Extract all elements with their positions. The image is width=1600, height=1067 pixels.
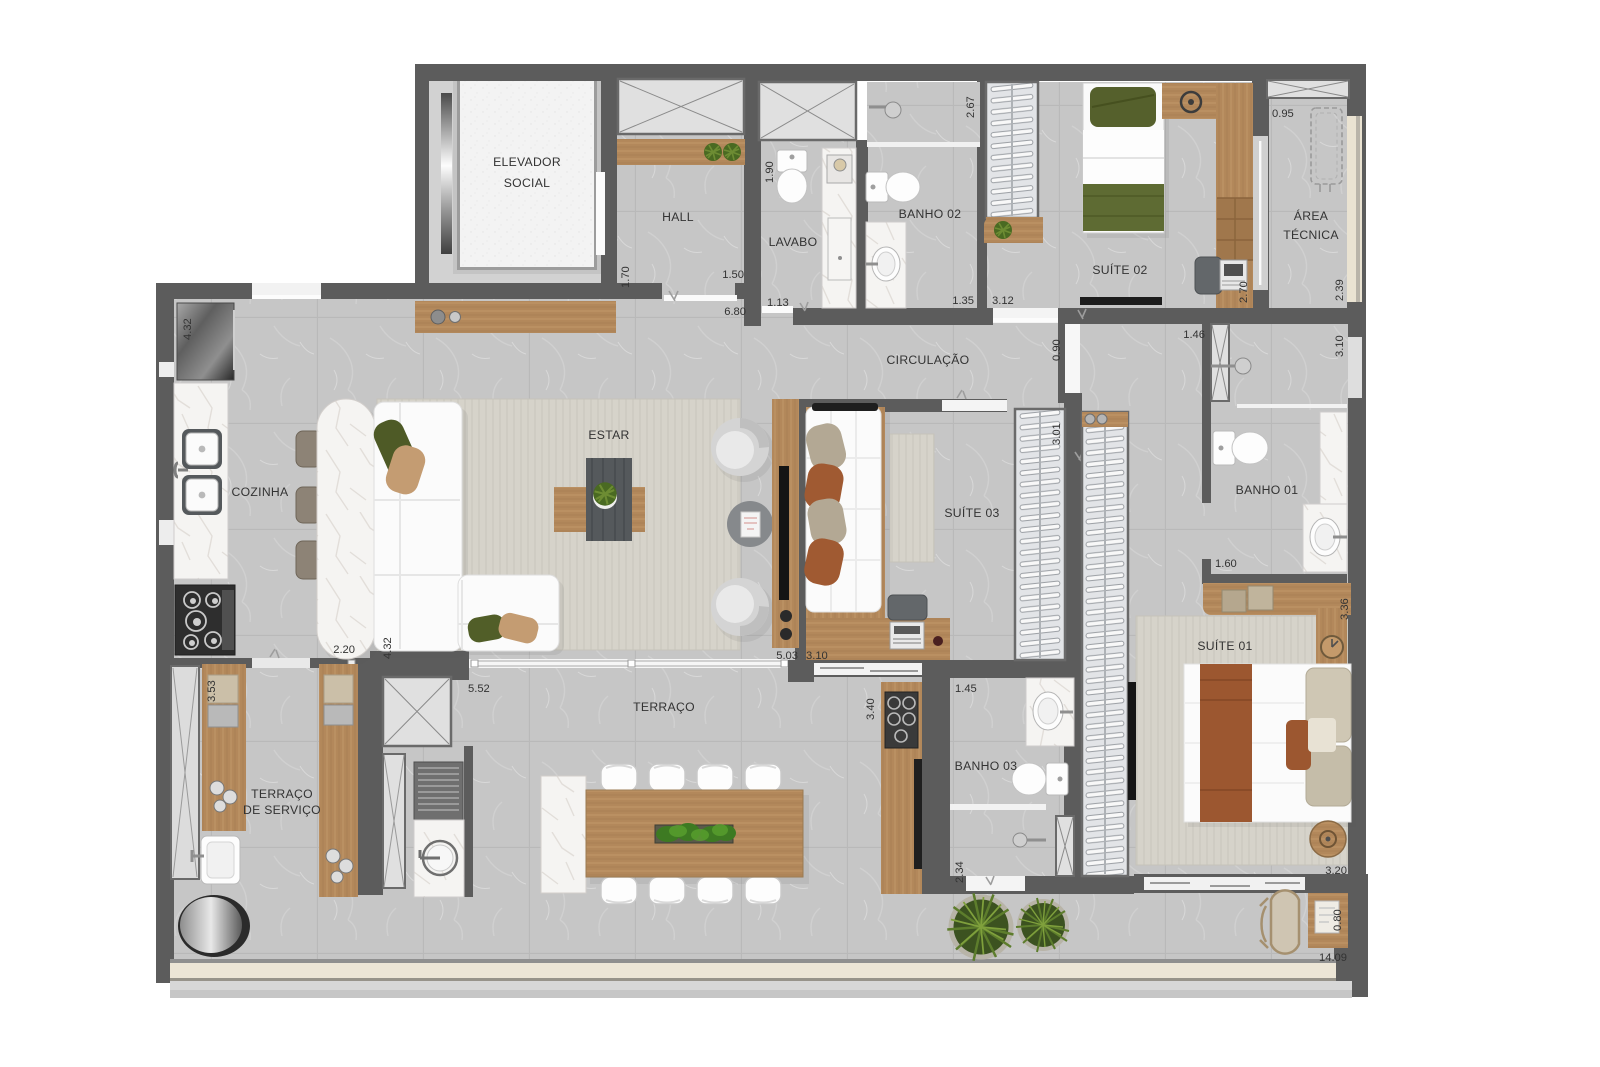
svg-text:BANHO 03: BANHO 03: [955, 759, 1018, 773]
svg-text:3.10: 3.10: [806, 650, 828, 662]
svg-text:0.90: 0.90: [1051, 339, 1063, 361]
svg-text:SUÍTE 03: SUÍTE 03: [944, 505, 999, 520]
svg-text:2.20: 2.20: [333, 644, 355, 656]
svg-text:1.46: 1.46: [1183, 329, 1205, 341]
svg-text:3.20: 3.20: [1325, 865, 1347, 877]
svg-text:BANHO 01: BANHO 01: [1236, 483, 1299, 497]
svg-text:SOCIAL: SOCIAL: [504, 176, 551, 190]
svg-text:BANHO 02: BANHO 02: [899, 207, 962, 221]
svg-text:2.34: 2.34: [954, 861, 966, 883]
svg-text:2.70: 2.70: [1238, 281, 1250, 303]
svg-text:ÁREA: ÁREA: [1294, 208, 1329, 223]
svg-text:ELEVADOR: ELEVADOR: [493, 155, 561, 169]
svg-text:3.36: 3.36: [1339, 598, 1351, 620]
svg-text:SUÍTE 01: SUÍTE 01: [1197, 638, 1252, 653]
svg-text:1.50: 1.50: [722, 269, 744, 281]
svg-text:1.45: 1.45: [955, 683, 977, 695]
svg-text:DE SERVIÇO: DE SERVIÇO: [243, 803, 321, 817]
svg-text:6.80: 6.80: [724, 306, 746, 318]
svg-text:SUÍTE 02: SUÍTE 02: [1092, 262, 1147, 277]
svg-text:1.70: 1.70: [620, 266, 632, 288]
svg-text:4.32: 4.32: [182, 318, 194, 340]
svg-text:2.39: 2.39: [1334, 279, 1346, 301]
svg-text:2.67: 2.67: [965, 96, 977, 118]
svg-text:0.95: 0.95: [1272, 108, 1294, 120]
svg-text:ESTAR: ESTAR: [588, 428, 629, 442]
svg-text:TERRAÇO: TERRAÇO: [633, 700, 695, 714]
svg-text:3.12: 3.12: [992, 295, 1014, 307]
svg-text:LAVABO: LAVABO: [769, 235, 818, 249]
svg-text:0.80: 0.80: [1332, 909, 1344, 931]
svg-text:COZINHA: COZINHA: [232, 485, 290, 499]
svg-text:HALL: HALL: [662, 210, 694, 224]
svg-text:3.40: 3.40: [865, 698, 877, 720]
svg-text:TERRAÇO: TERRAÇO: [251, 787, 313, 801]
svg-text:3.53: 3.53: [206, 680, 218, 702]
svg-text:3.01: 3.01: [1051, 423, 1063, 445]
svg-text:3.10: 3.10: [1334, 335, 1346, 357]
svg-text:1.60: 1.60: [1215, 558, 1237, 570]
svg-text:4.32: 4.32: [382, 637, 394, 659]
svg-text:1.35: 1.35: [952, 295, 974, 307]
svg-text:TÉCNICA: TÉCNICA: [1283, 227, 1339, 242]
svg-text:1.90: 1.90: [764, 161, 776, 183]
svg-text:14.09: 14.09: [1319, 952, 1347, 964]
svg-text:1.13: 1.13: [767, 297, 789, 309]
svg-text:CIRCULAÇÃO: CIRCULAÇÃO: [887, 353, 970, 367]
svg-text:5.03: 5.03: [776, 650, 798, 662]
svg-text:5.52: 5.52: [468, 683, 490, 695]
